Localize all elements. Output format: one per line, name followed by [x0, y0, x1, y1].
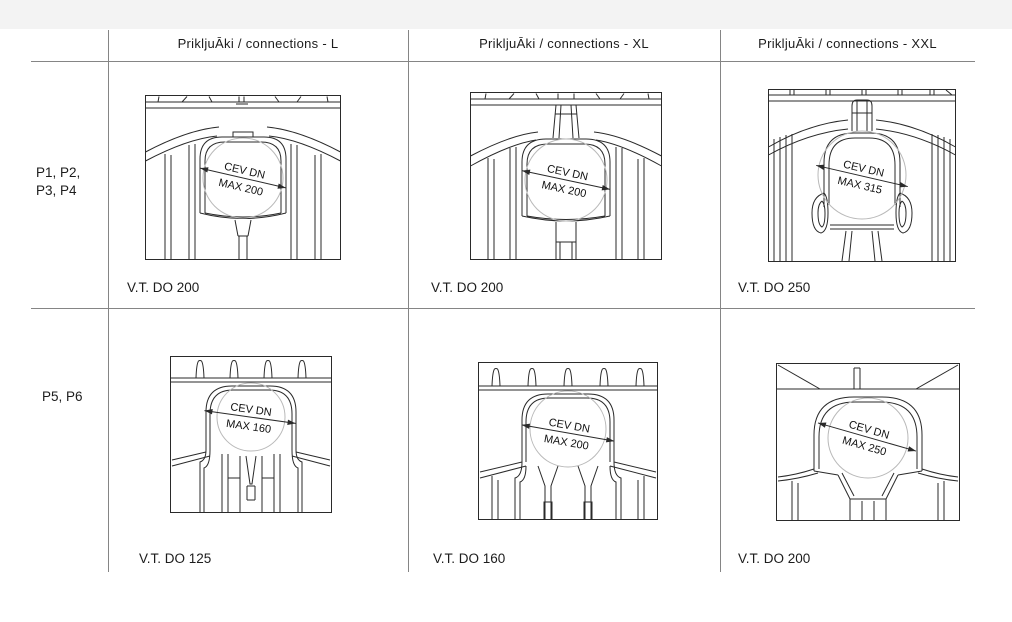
pipe-opening-circle — [818, 131, 906, 219]
caption-r2-l: V.T. DO 125 — [139, 551, 211, 566]
drawing-connection-xl-p1p4: CEV DN MAX 200 — [470, 92, 662, 260]
bottom-posts — [842, 231, 882, 261]
grid-vertical-line-2 — [408, 30, 409, 572]
top-nozzle — [852, 100, 872, 131]
caption-r1-xl: V.T. DO 200 — [431, 280, 503, 295]
bottom-bridge — [830, 225, 894, 229]
row-label-p5-p6: P5, P6 — [42, 388, 83, 406]
outer-steps — [200, 450, 302, 513]
dim-label-line1: CEV DN — [230, 401, 273, 419]
center-channel — [838, 473, 898, 521]
datasheet-page: PrikljuĀki / connections - L PrikljuĀki … — [0, 0, 1012, 622]
band-ticks — [790, 90, 952, 95]
top-band-perspective — [777, 365, 960, 389]
dimension-arrow: CEV DN MAX 200 — [519, 158, 613, 205]
column-header-l: PrikljuĀki / connections - L — [108, 28, 408, 58]
caption-r2-xxl: V.T. DO 200 — [738, 551, 810, 566]
dome-outer — [206, 386, 296, 450]
dome-bottom — [522, 216, 610, 221]
drawing-connection-l-p5p6: CEV DN MAX 160 — [170, 356, 332, 513]
caption-r2-xl: V.T. DO 160 — [433, 551, 505, 566]
dimension-arrow: CEV DN MAX 200 — [197, 155, 289, 203]
grid-vertical-line-3 — [720, 30, 721, 572]
column-header-xxl: PrikljuĀki / connections - XXL — [720, 28, 975, 58]
center-plug — [246, 456, 256, 500]
drawing-connection-xxl-p1p4: CEV DN MAX 315 — [768, 89, 956, 262]
dome-to-legs — [814, 471, 922, 475]
top-spikes — [196, 361, 306, 379]
drawing-connection-xxl-p5p6: CEV DN MAX 250 — [776, 363, 960, 521]
grid-horizontal-line-1 — [31, 61, 975, 62]
top-band-lines — [479, 386, 658, 390]
neck — [235, 220, 251, 259]
dimension-arrow: CEV DN MAX 200 — [519, 412, 617, 457]
dim-label-line2: MAX 160 — [225, 418, 271, 436]
caption-r1-l: V.T. DO 200 — [127, 280, 199, 295]
neck — [556, 222, 576, 260]
drawing-connection-l-p1p4: CEV DN MAX 200 — [145, 95, 341, 260]
side-panels — [792, 481, 944, 521]
caption-r1-xxl: V.T. DO 250 — [738, 280, 810, 295]
dome-top-tab — [233, 132, 253, 137]
dimension-arrow: CEV DN MAX 315 — [813, 153, 911, 202]
shoulder-swoops — [172, 452, 330, 466]
column-header-xl: PrikljuĀki / connections - XL — [408, 28, 720, 58]
grid-vertical-line-1 — [108, 30, 109, 572]
band-ticks — [485, 94, 649, 100]
dim-label-line2: MAX 200 — [541, 179, 588, 200]
grid-horizontal-line-2 — [31, 308, 975, 309]
top-post — [854, 368, 860, 389]
tank-outline — [171, 357, 332, 513]
row-label-p1-p4: P1, P2, P3, P4 — [36, 164, 80, 200]
band-ticks — [158, 97, 328, 105]
top-spikes — [492, 369, 644, 387]
dimension-arrow: CEV DN MAX 160 — [202, 398, 297, 440]
leg-channels — [538, 466, 598, 520]
side-ribs — [165, 144, 321, 259]
drawing-connection-xl-p5p6: CEV DN MAX 200 — [478, 362, 658, 520]
top-gray-band — [0, 0, 1012, 29]
pipe-opening-circle — [828, 398, 908, 478]
side-ribs — [774, 134, 950, 261]
dimension-arrow: CEV DN MAX 250 — [814, 410, 920, 466]
top-band-lines — [171, 378, 332, 382]
shoulder-swoops — [778, 469, 958, 481]
top-nozzle — [553, 94, 579, 139]
side-ribs — [488, 147, 644, 260]
shoulder-curves — [471, 132, 662, 166]
outer-steps — [515, 462, 621, 520]
shoulder-swoops — [480, 462, 656, 478]
top-band-lines — [146, 102, 341, 108]
top-band-lines — [471, 99, 662, 105]
